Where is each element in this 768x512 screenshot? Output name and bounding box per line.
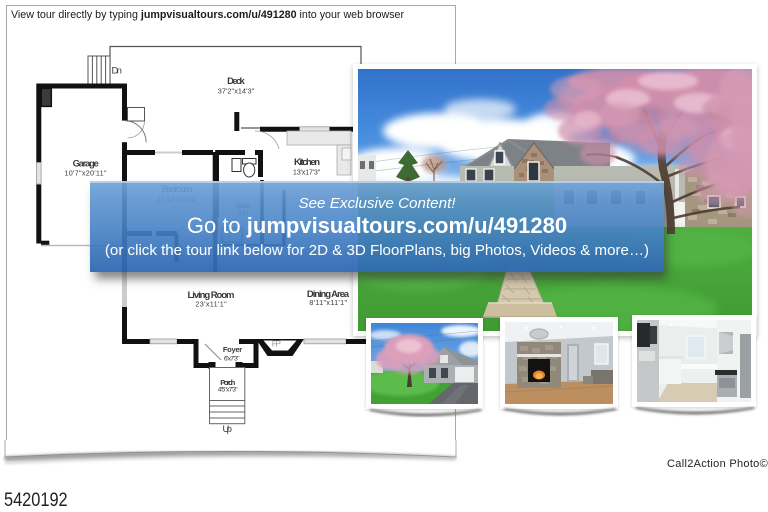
svg-text:37'2"x14'3": 37'2"x14'3" [218,87,255,96]
svg-text:8'11"x11'1": 8'11"x11'1" [309,298,347,307]
svg-text:6'x7'3": 6'x7'3" [224,355,240,362]
svg-text:Kitchen: Kitchen [294,157,320,168]
svg-text:4'5"x7'3": 4'5"x7'3" [218,386,238,393]
svg-text:23'x11'1": 23'x11'1" [195,299,227,308]
svg-text:FP: FP [272,338,282,348]
svg-text:13'x17'3": 13'x17'3" [293,168,321,177]
svg-text:Deck: Deck [227,76,245,87]
svg-text:Foyer: Foyer [223,345,242,354]
svg-text:Up: Up [223,424,232,435]
svg-text:Dn: Dn [111,65,122,76]
svg-text:10'7"x20'11": 10'7"x20'11" [65,168,107,177]
